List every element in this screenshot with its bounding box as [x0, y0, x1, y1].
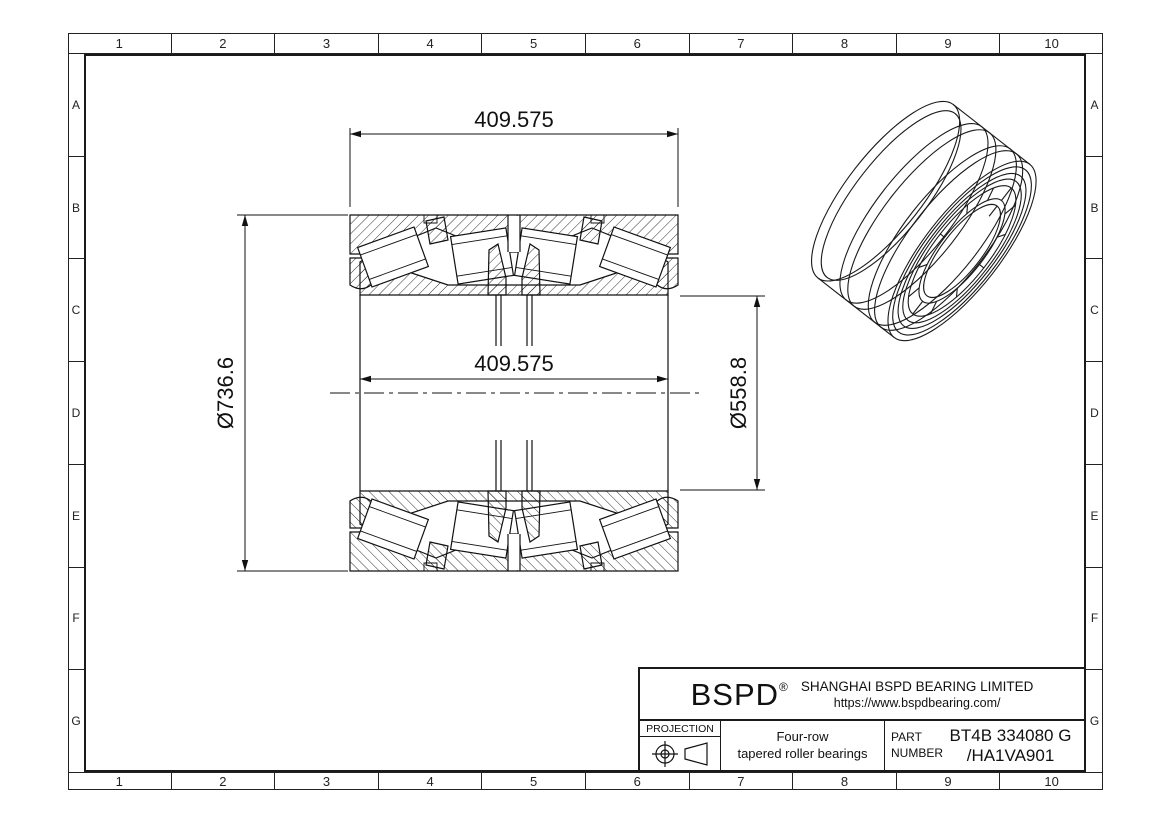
product-line1: Four-row	[776, 729, 828, 745]
drawing-sheet: 1 2 3 4 5 6 7 8 9 10 1 2 3 4 5 6 7 8 9 1…	[0, 0, 1170, 827]
projection-cell: PROJECTION	[640, 721, 720, 770]
projection-label: PROJECTION	[640, 721, 720, 737]
dimension-width-top: 409.575	[350, 107, 678, 207]
part-label: PART	[891, 730, 943, 746]
part-number-line1: BT4B 334080 G	[943, 726, 1078, 746]
dim-value: Ø736.6	[213, 357, 238, 429]
dim-value: Ø558.8	[726, 357, 751, 429]
part-number-cell: PART NUMBER BT4B 334080 G /HA1VA901	[884, 721, 1084, 770]
dimension-outer-diameter: Ø736.6	[213, 215, 348, 571]
title-block: BSPD® SHANGHAI BSPD BEARING LIMITED http…	[638, 667, 1086, 772]
title-block-header: BSPD® SHANGHAI BSPD BEARING LIMITED http…	[640, 669, 1084, 721]
product-description-cell: Four-row tapered roller bearings	[720, 721, 884, 770]
part-label: NUMBER	[891, 746, 943, 762]
first-angle-projection-icon	[640, 737, 720, 770]
logo-text: BSPD	[691, 677, 779, 712]
company-logo: BSPD®	[691, 679, 789, 710]
dimension-width-inner: 409.575	[360, 351, 668, 382]
company-name: SHANGHAI BSPD BEARING LIMITED	[801, 679, 1034, 694]
company-website: https://www.bspdbearing.com/	[801, 696, 1034, 710]
registered-trademark-icon: ®	[779, 680, 789, 694]
dim-value: 409.575	[474, 351, 554, 376]
product-line2: tapered roller bearings	[737, 746, 867, 762]
dimension-inner-diameter: Ø558.8	[680, 296, 765, 490]
part-number-line2: /HA1VA901	[943, 746, 1078, 766]
dim-value: 409.575	[474, 107, 554, 132]
bearing-3d-view	[788, 81, 1060, 361]
